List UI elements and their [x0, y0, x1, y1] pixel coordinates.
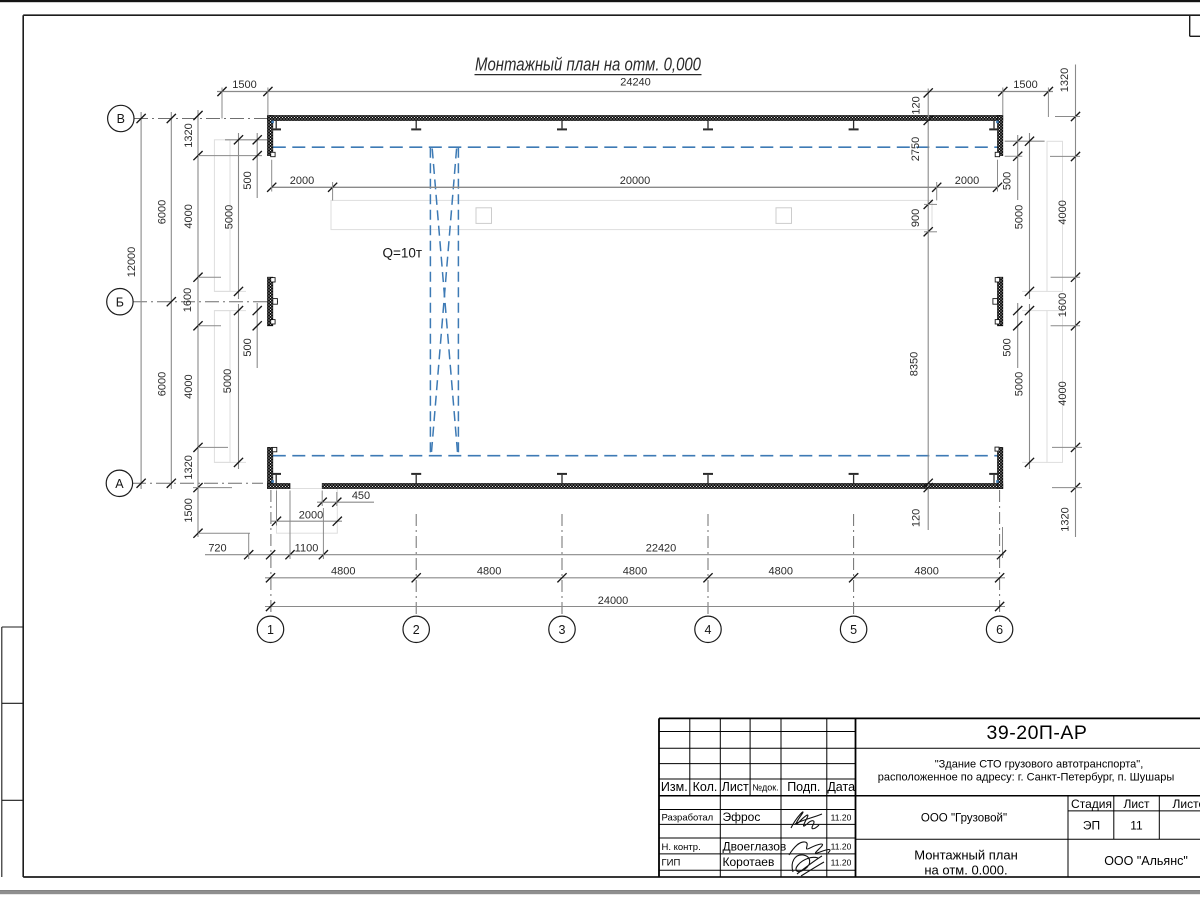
- svg-text:5: 5: [850, 623, 857, 637]
- svg-text:2000: 2000: [290, 175, 314, 187]
- svg-text:Подп.: Подп.: [787, 780, 820, 794]
- svg-text:11: 11: [1130, 819, 1143, 833]
- svg-text:4800: 4800: [331, 566, 355, 578]
- svg-text:20000: 20000: [620, 175, 651, 187]
- svg-text:2: 2: [413, 623, 420, 637]
- svg-text:1600: 1600: [1057, 293, 1069, 317]
- svg-text:5000: 5000: [1014, 205, 1026, 229]
- svg-text:№док.: №док.: [752, 782, 778, 792]
- svg-text:Разработал: Разработал: [662, 813, 714, 824]
- svg-text:120: 120: [910, 509, 922, 527]
- svg-text:Монтажный план на отм. 0,000: Монтажный план на отм. 0,000: [475, 54, 702, 75]
- svg-text:Эфрос: Эфрос: [723, 810, 761, 824]
- svg-text:1500: 1500: [232, 79, 256, 91]
- svg-text:Стадия: Стадия: [1071, 797, 1112, 811]
- svg-text:ГИП: ГИП: [662, 857, 681, 868]
- svg-text:Двоеглазов: Двоеглазов: [723, 839, 787, 853]
- svg-text:Изм.: Изм.: [661, 780, 688, 794]
- svg-text:Н. контр.: Н. контр.: [662, 842, 701, 853]
- svg-text:11.20: 11.20: [831, 857, 852, 867]
- svg-text:39-20П-АР: 39-20П-АР: [987, 722, 1088, 744]
- svg-text:11.20: 11.20: [831, 842, 852, 852]
- svg-text:Q=10т: Q=10т: [383, 246, 423, 261]
- svg-text:1320: 1320: [183, 455, 195, 479]
- svg-text:900: 900: [910, 209, 922, 227]
- svg-text:1320: 1320: [1059, 68, 1071, 92]
- svg-text:500: 500: [1002, 172, 1014, 190]
- svg-text:Коротаев: Коротаев: [723, 855, 775, 869]
- svg-text:720: 720: [208, 542, 226, 554]
- svg-text:Лист: Лист: [722, 780, 749, 794]
- svg-text:ООО "Грузовой": ООО "Грузовой": [921, 813, 1007, 825]
- svg-text:1320: 1320: [183, 123, 195, 147]
- svg-text:1600: 1600: [182, 288, 194, 312]
- svg-text:В: В: [117, 112, 125, 126]
- svg-text:на отм. 0.000.: на отм. 0.000.: [924, 863, 1007, 878]
- svg-text:500: 500: [1002, 338, 1014, 356]
- svg-text:5000: 5000: [1014, 372, 1026, 396]
- svg-text:ЭП: ЭП: [1083, 819, 1100, 833]
- svg-text:4800: 4800: [769, 566, 793, 578]
- svg-text:4000: 4000: [1057, 381, 1069, 405]
- svg-text:1500: 1500: [1013, 79, 1037, 91]
- svg-text:4800: 4800: [914, 566, 938, 578]
- svg-text:"Здание СТО грузового автотран: "Здание СТО грузового автотранспорта",: [935, 759, 1144, 771]
- svg-text:4: 4: [705, 623, 712, 637]
- svg-text:3: 3: [559, 623, 566, 637]
- svg-text:500: 500: [242, 338, 254, 356]
- svg-text:11.20: 11.20: [831, 813, 852, 823]
- svg-text:5000: 5000: [222, 369, 234, 393]
- svg-text:Лист: Лист: [1123, 797, 1150, 811]
- svg-text:2000: 2000: [299, 509, 323, 521]
- svg-text:6000: 6000: [156, 372, 168, 396]
- svg-text:120: 120: [910, 96, 922, 114]
- svg-text:расположенное по адресу: г. Са: расположенное по адресу: г. Санкт-Петерб…: [878, 772, 1175, 784]
- svg-text:6000: 6000: [156, 200, 168, 224]
- svg-text:2750: 2750: [910, 137, 922, 161]
- svg-text:4800: 4800: [623, 566, 647, 578]
- svg-text:Б: Б: [116, 295, 124, 309]
- svg-text:12000: 12000: [126, 247, 138, 278]
- svg-text:5000: 5000: [223, 205, 235, 229]
- svg-text:24000: 24000: [598, 595, 629, 607]
- svg-text:6: 6: [996, 623, 1003, 637]
- svg-text:Листов: Листов: [1173, 797, 1200, 811]
- svg-text:Дата: Дата: [827, 780, 855, 794]
- svg-text:1500: 1500: [183, 498, 195, 522]
- svg-text:4000: 4000: [183, 374, 195, 398]
- svg-text:4000: 4000: [183, 204, 195, 228]
- svg-text:450: 450: [352, 490, 370, 502]
- svg-text:1320: 1320: [1060, 507, 1072, 531]
- svg-text:4800: 4800: [477, 566, 501, 578]
- svg-text:ООО "Альянс": ООО "Альянс": [1104, 854, 1188, 868]
- svg-text:500: 500: [242, 171, 254, 189]
- svg-text:24240: 24240: [620, 77, 651, 89]
- svg-text:1100: 1100: [295, 542, 319, 554]
- svg-text:Кол.: Кол.: [693, 780, 718, 794]
- svg-text:4000: 4000: [1057, 200, 1069, 224]
- svg-text:А: А: [115, 477, 124, 491]
- svg-text:8350: 8350: [908, 352, 920, 376]
- svg-text:Монтажный план: Монтажный план: [914, 848, 1018, 863]
- svg-text:22420: 22420: [646, 542, 677, 554]
- svg-text:2000: 2000: [955, 175, 979, 187]
- svg-text:1: 1: [267, 623, 274, 637]
